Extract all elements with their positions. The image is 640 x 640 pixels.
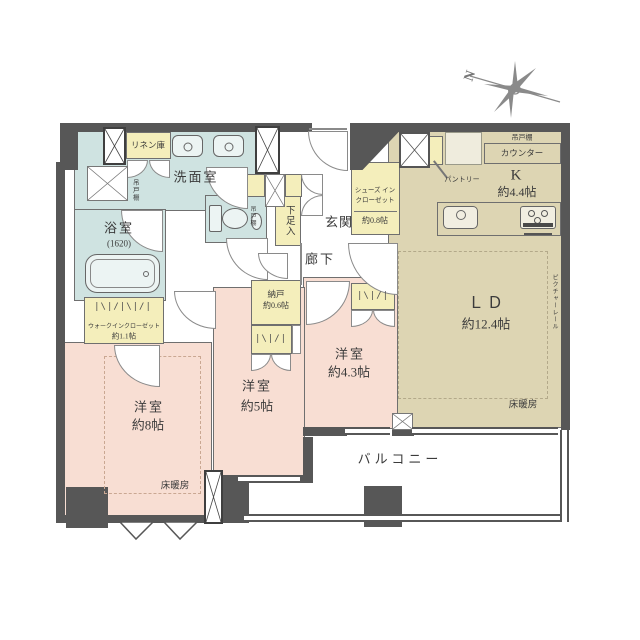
wall-top-b bbox=[396, 123, 570, 132]
bedroom8-size-label: 約8帖 bbox=[132, 419, 165, 432]
kitchen-cupboard-label: 吊戸棚 bbox=[512, 135, 533, 142]
ld-floor-heating-label: 床暖房 bbox=[509, 401, 538, 411]
balcony-rail-bottom bbox=[244, 514, 569, 522]
bathroom-size-label: (1620) bbox=[107, 240, 131, 249]
bedroom43-label: 洋室 bbox=[335, 348, 365, 361]
shoe-cabinet-label: 下足入 bbox=[283, 205, 293, 237]
kitchen-sink bbox=[443, 206, 478, 229]
shoe-cabinet-door-bottom bbox=[301, 195, 323, 216]
hanger-rail-closet5: |\|/| bbox=[255, 334, 287, 344]
refrigerator-space bbox=[445, 132, 482, 165]
toilet-tank bbox=[209, 205, 222, 232]
vanity-sink-right bbox=[213, 135, 244, 157]
wall-right bbox=[561, 123, 570, 430]
sic-divider-line bbox=[354, 211, 397, 212]
compass-rose: N bbox=[448, 56, 573, 124]
shaft-x-top-left bbox=[103, 127, 126, 165]
compass-north-label: N bbox=[462, 69, 480, 84]
sash-box-x bbox=[392, 413, 413, 430]
entrance-step-line bbox=[300, 243, 302, 285]
counter-label: カウンター bbox=[501, 149, 544, 158]
sic-line2-label: クローゼット bbox=[356, 198, 395, 205]
bedroom5-door-arc bbox=[174, 291, 216, 329]
column-x-bottom bbox=[204, 470, 223, 524]
picture-rail-label: ピクチャーレール bbox=[551, 274, 557, 330]
wall-left bbox=[56, 162, 65, 523]
window-bedroom43 bbox=[345, 427, 390, 435]
awning-windows-bedroom8 bbox=[108, 521, 208, 541]
kitchen-label: K bbox=[511, 169, 522, 184]
wic-label: ウォークインクローゼット bbox=[88, 324, 160, 330]
bathtub bbox=[85, 254, 160, 293]
wall-step-vertical bbox=[303, 437, 313, 479]
wic-size-label: 約1.1帖 bbox=[112, 332, 136, 340]
sic-line1-label: シューズ イン bbox=[355, 188, 395, 195]
balcony-rail-right bbox=[560, 430, 569, 522]
bedroom5-size-label: 約5帖 bbox=[241, 400, 274, 413]
window-bedroom5 bbox=[238, 475, 300, 483]
storage-label: 納戸 bbox=[267, 290, 284, 299]
bedroom8-floor-heating-label: 床暖房 bbox=[161, 482, 190, 492]
ld-size-label: 約12.4帖 bbox=[462, 318, 511, 331]
hall-cabinet-left bbox=[247, 174, 265, 197]
storage-size-label: 約0.6帖 bbox=[263, 302, 289, 310]
entrance-label: 玄関 bbox=[325, 216, 353, 229]
storage-duct bbox=[292, 325, 301, 354]
hanger-rail-wic: |\|/|\|/| bbox=[94, 302, 152, 312]
floor-plan: N 洗面室 リネン庫 吊戸棚 浴室 (1620) 吊戸棚 下足入 玄関 シューズ… bbox=[0, 0, 640, 640]
shaft-x-hall-small bbox=[265, 174, 285, 207]
balcony-label: バルコニー bbox=[358, 453, 443, 466]
hall-cabinet-right bbox=[285, 174, 302, 197]
pantry-label: パントリー bbox=[444, 177, 479, 184]
kitchen-stove bbox=[520, 206, 556, 229]
corridor-label: 廊下 bbox=[305, 253, 335, 266]
stove-grill-line bbox=[524, 233, 552, 235]
front-door-sill bbox=[309, 128, 347, 130]
bathroom-label: 浴室 bbox=[104, 222, 134, 235]
toilet-bowl bbox=[222, 208, 248, 229]
shoe-cabinet-door-top bbox=[301, 174, 323, 195]
kitchen-size-label: 約4.4帖 bbox=[497, 186, 536, 198]
ld-label: ＬＤ bbox=[468, 296, 506, 312]
hanger-rail-closet43: |\|/| bbox=[357, 291, 389, 301]
window-ld bbox=[412, 427, 558, 435]
vanity-sink-left bbox=[172, 135, 203, 157]
bedroom43-size-label: 約4.3帖 bbox=[328, 366, 370, 379]
toilet-cupboard-label: 吊戸棚 bbox=[249, 206, 255, 227]
sic-size-label: 約0.8帖 bbox=[362, 217, 388, 225]
washroom-label: 洗面室 bbox=[173, 171, 218, 184]
front-door-arc bbox=[308, 131, 348, 171]
shaft-x-kitchen bbox=[399, 132, 430, 168]
washroom-cupboard-label: 吊戸棚 bbox=[131, 179, 138, 202]
washing-machine-x bbox=[87, 166, 128, 201]
wall-bedroom43-bottom bbox=[303, 427, 347, 436]
linen-label: リネン庫 bbox=[131, 141, 165, 150]
shaft-x-hall-top bbox=[255, 126, 280, 174]
bedroom8-label: 洋室 bbox=[134, 401, 164, 414]
bedroom5-label: 洋室 bbox=[242, 380, 272, 393]
